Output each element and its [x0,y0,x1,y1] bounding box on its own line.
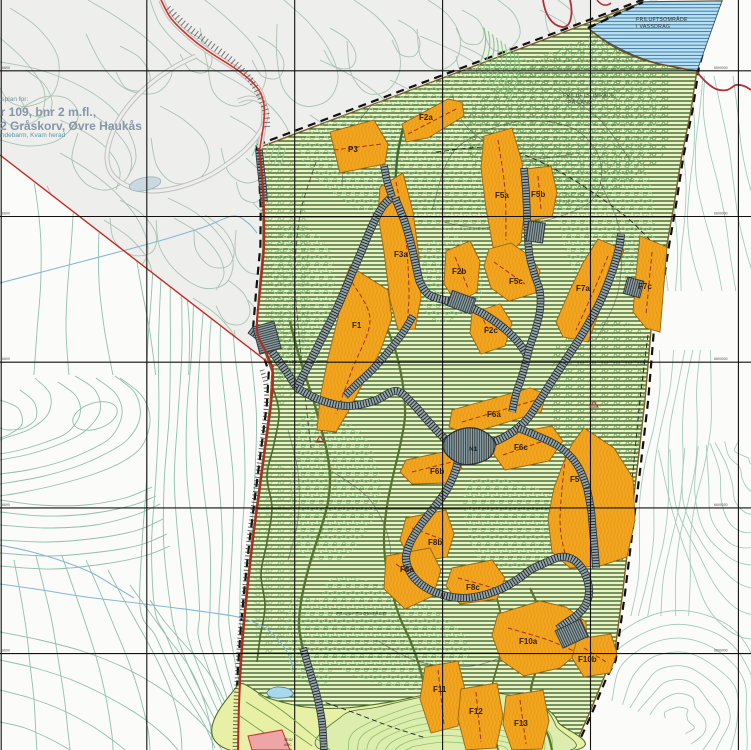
svg-text:Gnr 109, bnr 2 m.fl.,: Gnr 109, bnr 2 m.fl., [0,105,96,119]
svg-text:F11: F11 [433,685,447,694]
svg-text:F3a: F3a [394,250,408,259]
svg-text:F12: F12 [469,707,483,716]
svg-text:6690: 6690 [2,503,10,507]
svg-text:6690000: 6690000 [714,503,728,507]
svg-text:AVK.: AVK. [284,743,292,747]
svg-text:PÅ LAND: PÅ LAND [568,99,592,106]
svg-text:F2a: F2a [419,113,433,122]
svg-text:2 Gråskorv, Øvre Haukås: 2 Gråskorv, Øvre Haukås [0,119,142,133]
svg-text:N1: N1 [469,446,478,453]
svg-text:F8a: F8a [400,565,414,574]
svg-text:F5c: F5c [509,277,523,286]
svg-text:FRILUFTSOMRÅDE: FRILUFTSOMRÅDE [636,16,688,23]
svg-text:F10b: F10b [578,655,597,664]
svg-text:6690000: 6690000 [714,357,728,361]
svg-text:F8b: F8b [428,538,442,547]
svg-text:F2b: F2b [452,267,466,276]
svg-text:F5a: F5a [495,191,509,200]
svg-text:Reguleringsplan for:: Reguleringsplan for: [0,96,28,103]
svg-text:F6c: F6c [514,443,528,452]
svg-text:F8c: F8c [466,583,480,592]
svg-text:F7c: F7c [638,282,652,291]
svg-text:F5: F5 [570,475,580,484]
svg-text:FRILUFTSOMRÅDE: FRILUFTSOMRÅDE [563,92,615,99]
svg-text:6690: 6690 [2,66,10,70]
svg-text:F6a: F6a [487,410,501,419]
svg-text:6690000: 6690000 [714,66,728,70]
svg-text:F7a: F7a [576,284,590,293]
svg-text:FRILUFTSOMRÅDE: FRILUFTSOMRÅDE [336,610,387,616]
svg-text:P3: P3 [348,145,358,154]
svg-text:F2c: F2c [484,326,498,335]
svg-text:6690: 6690 [2,649,10,653]
svg-text:6690000: 6690000 [714,212,728,216]
svg-text:6690000: 6690000 [714,649,728,653]
svg-text:VEG/: VEG/ [284,738,293,742]
svg-text:Strandebarm, Kvam herad: Strandebarm, Kvam herad [0,132,66,139]
svg-text:F13: F13 [514,719,528,728]
svg-text:F5b: F5b [531,190,545,199]
svg-text:6690: 6690 [2,357,10,361]
svg-text:I VASSDRAG: I VASSDRAG [636,24,670,30]
svg-text:6690: 6690 [2,212,10,216]
svg-text:F1: F1 [352,321,362,330]
svg-text:F10a: F10a [519,637,538,646]
